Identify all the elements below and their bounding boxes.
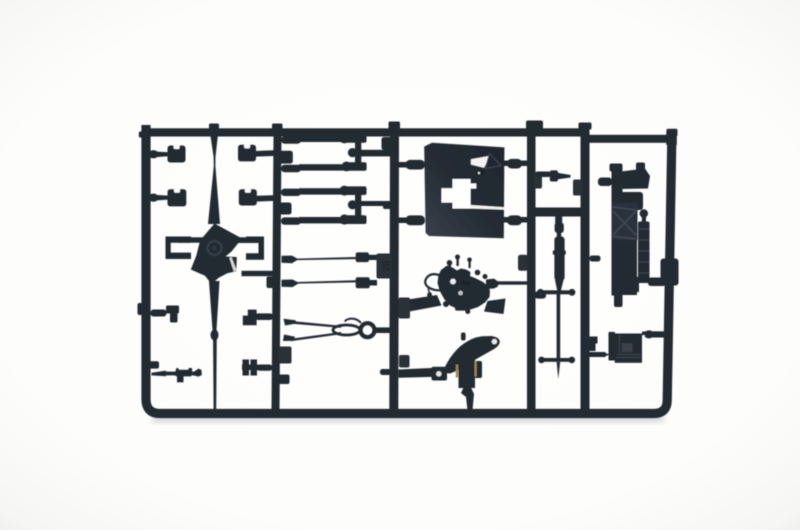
svg-text:2B: 2B <box>381 260 391 271</box>
